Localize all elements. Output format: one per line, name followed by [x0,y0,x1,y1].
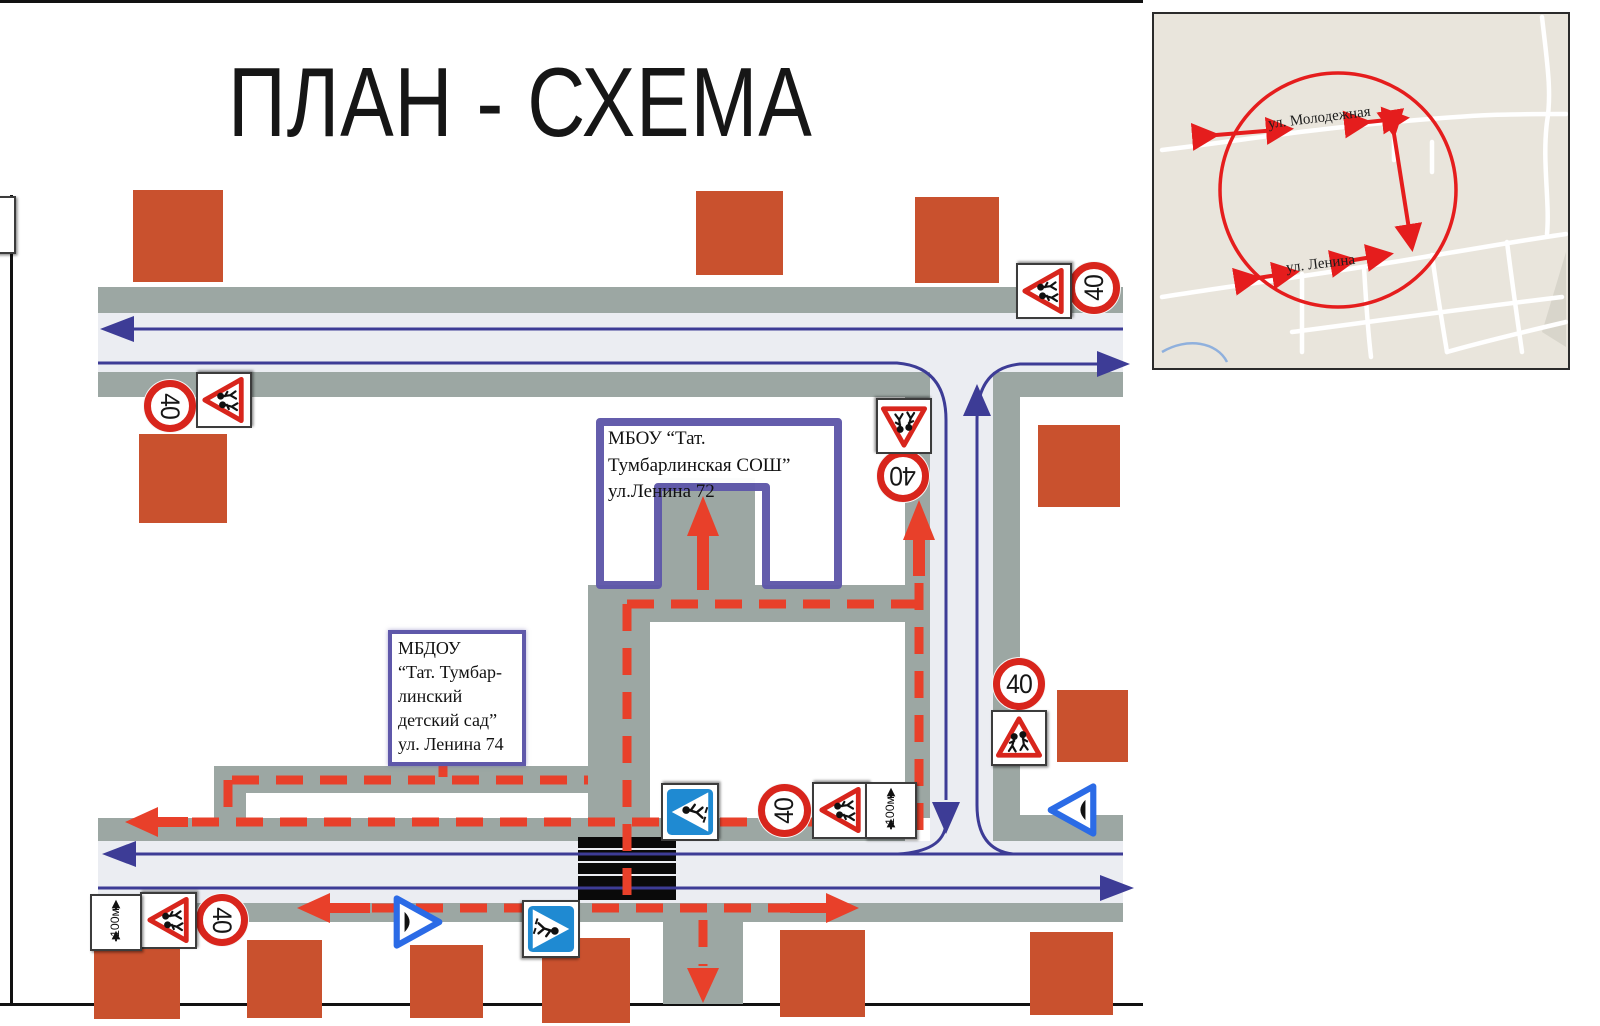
map-creek [1162,343,1227,362]
speed-limit-40-sign: 40 [196,894,248,946]
kindergarten-label: МБДОУ “Тат. Тумбар- линский детский сад”… [398,637,516,757]
traffic-flow-arrowheads [100,316,1134,901]
inset-location-map: ул. Молодежная ул. Ленина [1152,12,1570,370]
children-warning-sign [876,398,932,454]
school-label: МБОУ “Тат. Тумбарлинская СОШ” ул.Ленина … [608,426,830,506]
children-warning-sign [140,892,197,949]
distance-100m-plate: 100м [90,894,142,951]
children-warning-sign [991,710,1047,766]
distance-100m-plate: 100м [865,782,917,839]
pedestrian-crossing-sign [661,783,719,841]
map-roads [1162,17,1566,357]
speed-limit-40-sign: 40 [877,450,929,502]
speed-limit-40-sign: 40 [758,784,811,837]
inset-map-drawing [1154,14,1568,368]
children-warning-sign [1016,263,1072,319]
distance-plate-text: 100м [108,908,122,937]
children-warning-sign [196,372,252,428]
map-measure-arrows [1216,118,1412,278]
pedestrian-crossing-sign [522,900,580,958]
speed-limit-40-sign: 40 [144,380,196,432]
distance-plate-text: 100м [883,796,897,825]
speed-limit-40-sign: 40 [1068,262,1120,314]
speed-bump-sign [390,894,446,950]
speed-bump-sign [1044,782,1100,838]
speed-limit-40-sign: 40 [993,658,1045,710]
children-warning-sign [812,782,869,839]
plan-scheme-canvas: ПЛАН - СХЕМА [0,0,1600,1026]
